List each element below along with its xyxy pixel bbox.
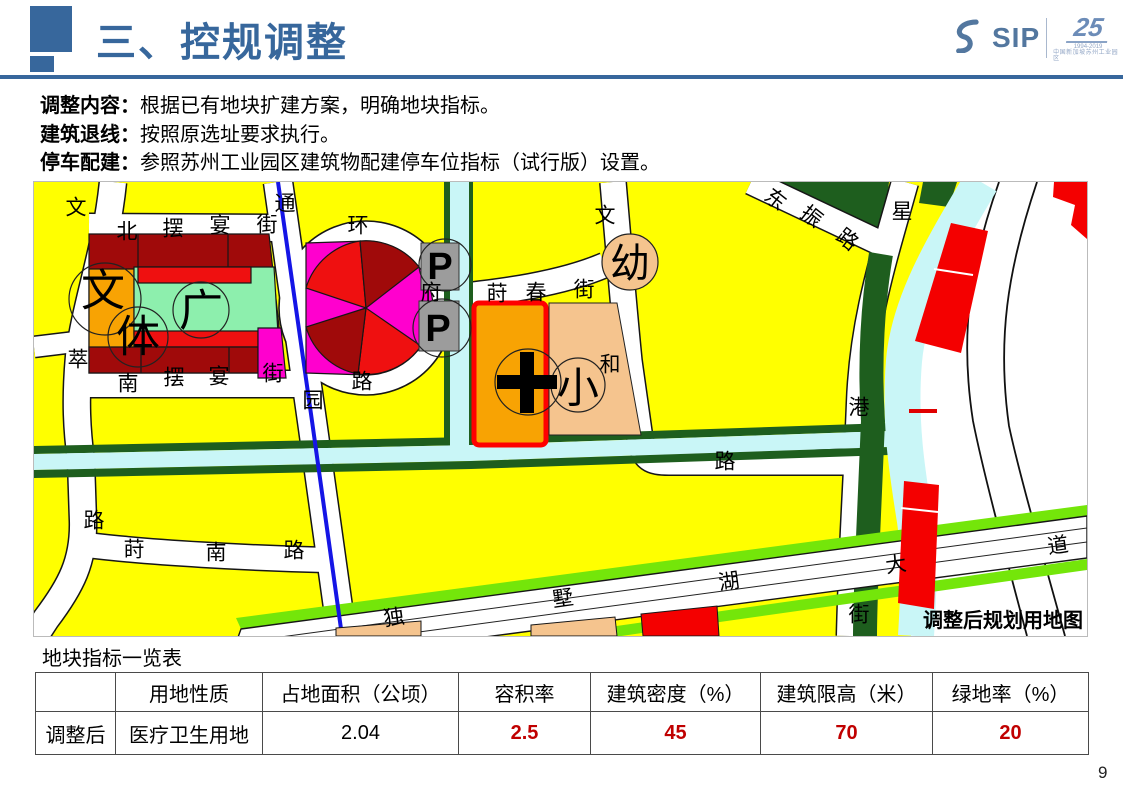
map-label: 广 (179, 287, 223, 336)
note-line: 停车配建：参照苏州工业园区建筑物配建停车位指标（试行版）设置。 (40, 149, 660, 178)
map-label: 墅 (551, 586, 575, 612)
plot-indicator-table: 用地性质 占地面积（公顷） 容积率 建筑密度（%） 建筑限高（米） 绿地率（%）… (35, 672, 1089, 755)
map-label: 文 (66, 197, 87, 220)
map-label: 路 (352, 371, 373, 394)
note-text: 根据已有地块扩建方案，明确地块指标。 (140, 95, 500, 117)
cell-green-rate: 20 (933, 712, 1089, 755)
title-accent-square-large (30, 6, 72, 52)
map-label: 萃 (68, 349, 89, 372)
page-number: 9 (1098, 763, 1107, 783)
page-title: 三、控规调整 (96, 10, 348, 68)
note-label: 停车配建： (40, 152, 140, 174)
map-label: 小 (557, 365, 599, 412)
map-label: 路 (715, 451, 736, 474)
note-label: 调整内容： (40, 95, 140, 117)
map-caption: 调整后规划用地图 (923, 604, 1083, 633)
note-label: 建筑退线： (40, 124, 140, 146)
title-accent-square-small (30, 56, 54, 72)
map-label: 春 (526, 282, 547, 305)
cell-land-use: 医疗卫生用地 (116, 712, 263, 755)
block-round-plaza (306, 241, 433, 375)
map-label: 摆 (163, 218, 184, 241)
table-title: 地块指标一览表 (42, 642, 182, 671)
sip-swirl-icon (952, 19, 986, 58)
map-label: P (425, 308, 450, 350)
anniversary-subtext: 中国新加坡苏州工业园区 (1053, 50, 1123, 62)
map-label: 环 (348, 215, 369, 238)
cell-height: 70 (761, 712, 933, 755)
sip-logo: SIP 25 1994-2019 中国新加坡苏州工业园区 (952, 14, 1123, 62)
title-divider-rule (0, 75, 1123, 79)
note-line: 建筑退线：按照原选址要求执行。 (40, 121, 660, 150)
table-value-row: 调整后 医疗卫生用地 2.04 2.5 45 70 20 (36, 712, 1089, 755)
map-label: 宴 (210, 215, 231, 238)
header-blank (36, 673, 116, 712)
sip-logo-text: SIP (992, 22, 1040, 54)
map-label: 园 (303, 390, 324, 413)
header-area: 占地面积（公顷） (263, 673, 459, 712)
map-label: 路 (84, 510, 105, 533)
header-land-use: 用地性质 (116, 673, 263, 712)
map-label: 和 (600, 354, 621, 377)
map-label: 文 (81, 267, 125, 316)
header-far: 容积率 (459, 673, 591, 712)
map-label: 街 (263, 363, 284, 386)
map-label: 摆 (164, 367, 185, 390)
map-label: 街 (574, 279, 595, 302)
map-label: 南 (118, 373, 139, 396)
hospital-parcel (474, 303, 546, 445)
note-text: 按照原选址要求执行。 (140, 124, 340, 146)
map-label: 北 (117, 221, 138, 244)
note-line: 调整内容：根据已有地块扩建方案，明确地块指标。 (40, 92, 660, 121)
map-label: 体 (116, 313, 160, 362)
map-label: 街 (257, 214, 278, 237)
map-label: 道 (1046, 533, 1070, 559)
map-label: 大 (884, 552, 908, 578)
map-label: 湖 (717, 569, 741, 595)
adjustment-notes: 调整内容：根据已有地块扩建方案，明确地块指标。 建筑退线：按照原选址要求执行。 … (40, 92, 660, 178)
map-label: 星 (892, 201, 913, 224)
zoning-map: 文萃路北摆宴街通园环府路南摆宴街莳春街文和路东振路星港街莳南路独墅湖大道文体广幼… (33, 181, 1088, 637)
map-label: 南 (206, 542, 227, 565)
map-label: 街 (849, 604, 870, 627)
header-density: 建筑密度（%） (591, 673, 761, 712)
logo-divider (1046, 18, 1047, 58)
map-label: 文 (595, 205, 616, 228)
map-label: 莳 (124, 539, 145, 562)
map-label: 路 (284, 540, 305, 563)
map-label: 宴 (209, 366, 230, 389)
map-label: 幼 (610, 242, 650, 286)
header-height: 建筑限高（米） (761, 673, 933, 712)
anniversary-mark: 25 1994-2019 中国新加坡苏州工业园区 (1053, 14, 1123, 62)
anniversary-number: 25 (1066, 14, 1111, 43)
table-header-row: 用地性质 占地面积（公顷） 容积率 建筑密度（%） 建筑限高（米） 绿地率（%） (36, 673, 1089, 712)
map-label: 通 (275, 193, 296, 216)
zoning-map-svg: 文萃路北摆宴街通园环府路南摆宴街莳春街文和路东振路星港街莳南路独墅湖大道文体广幼… (34, 182, 1087, 636)
cell-area: 2.04 (263, 712, 459, 755)
map-label: 独 (382, 605, 406, 631)
map-label: 港 (849, 397, 870, 420)
cell-row-label: 调整后 (36, 712, 116, 755)
note-text: 参照苏州工业园区建筑物配建停车位指标（试行版）设置。 (140, 152, 660, 174)
map-label: 莳 (487, 283, 508, 306)
header-green-rate: 绿地率（%） (933, 673, 1089, 712)
cell-density: 45 (591, 712, 761, 755)
map-label: P (427, 246, 452, 288)
cell-far: 2.5 (459, 712, 591, 755)
